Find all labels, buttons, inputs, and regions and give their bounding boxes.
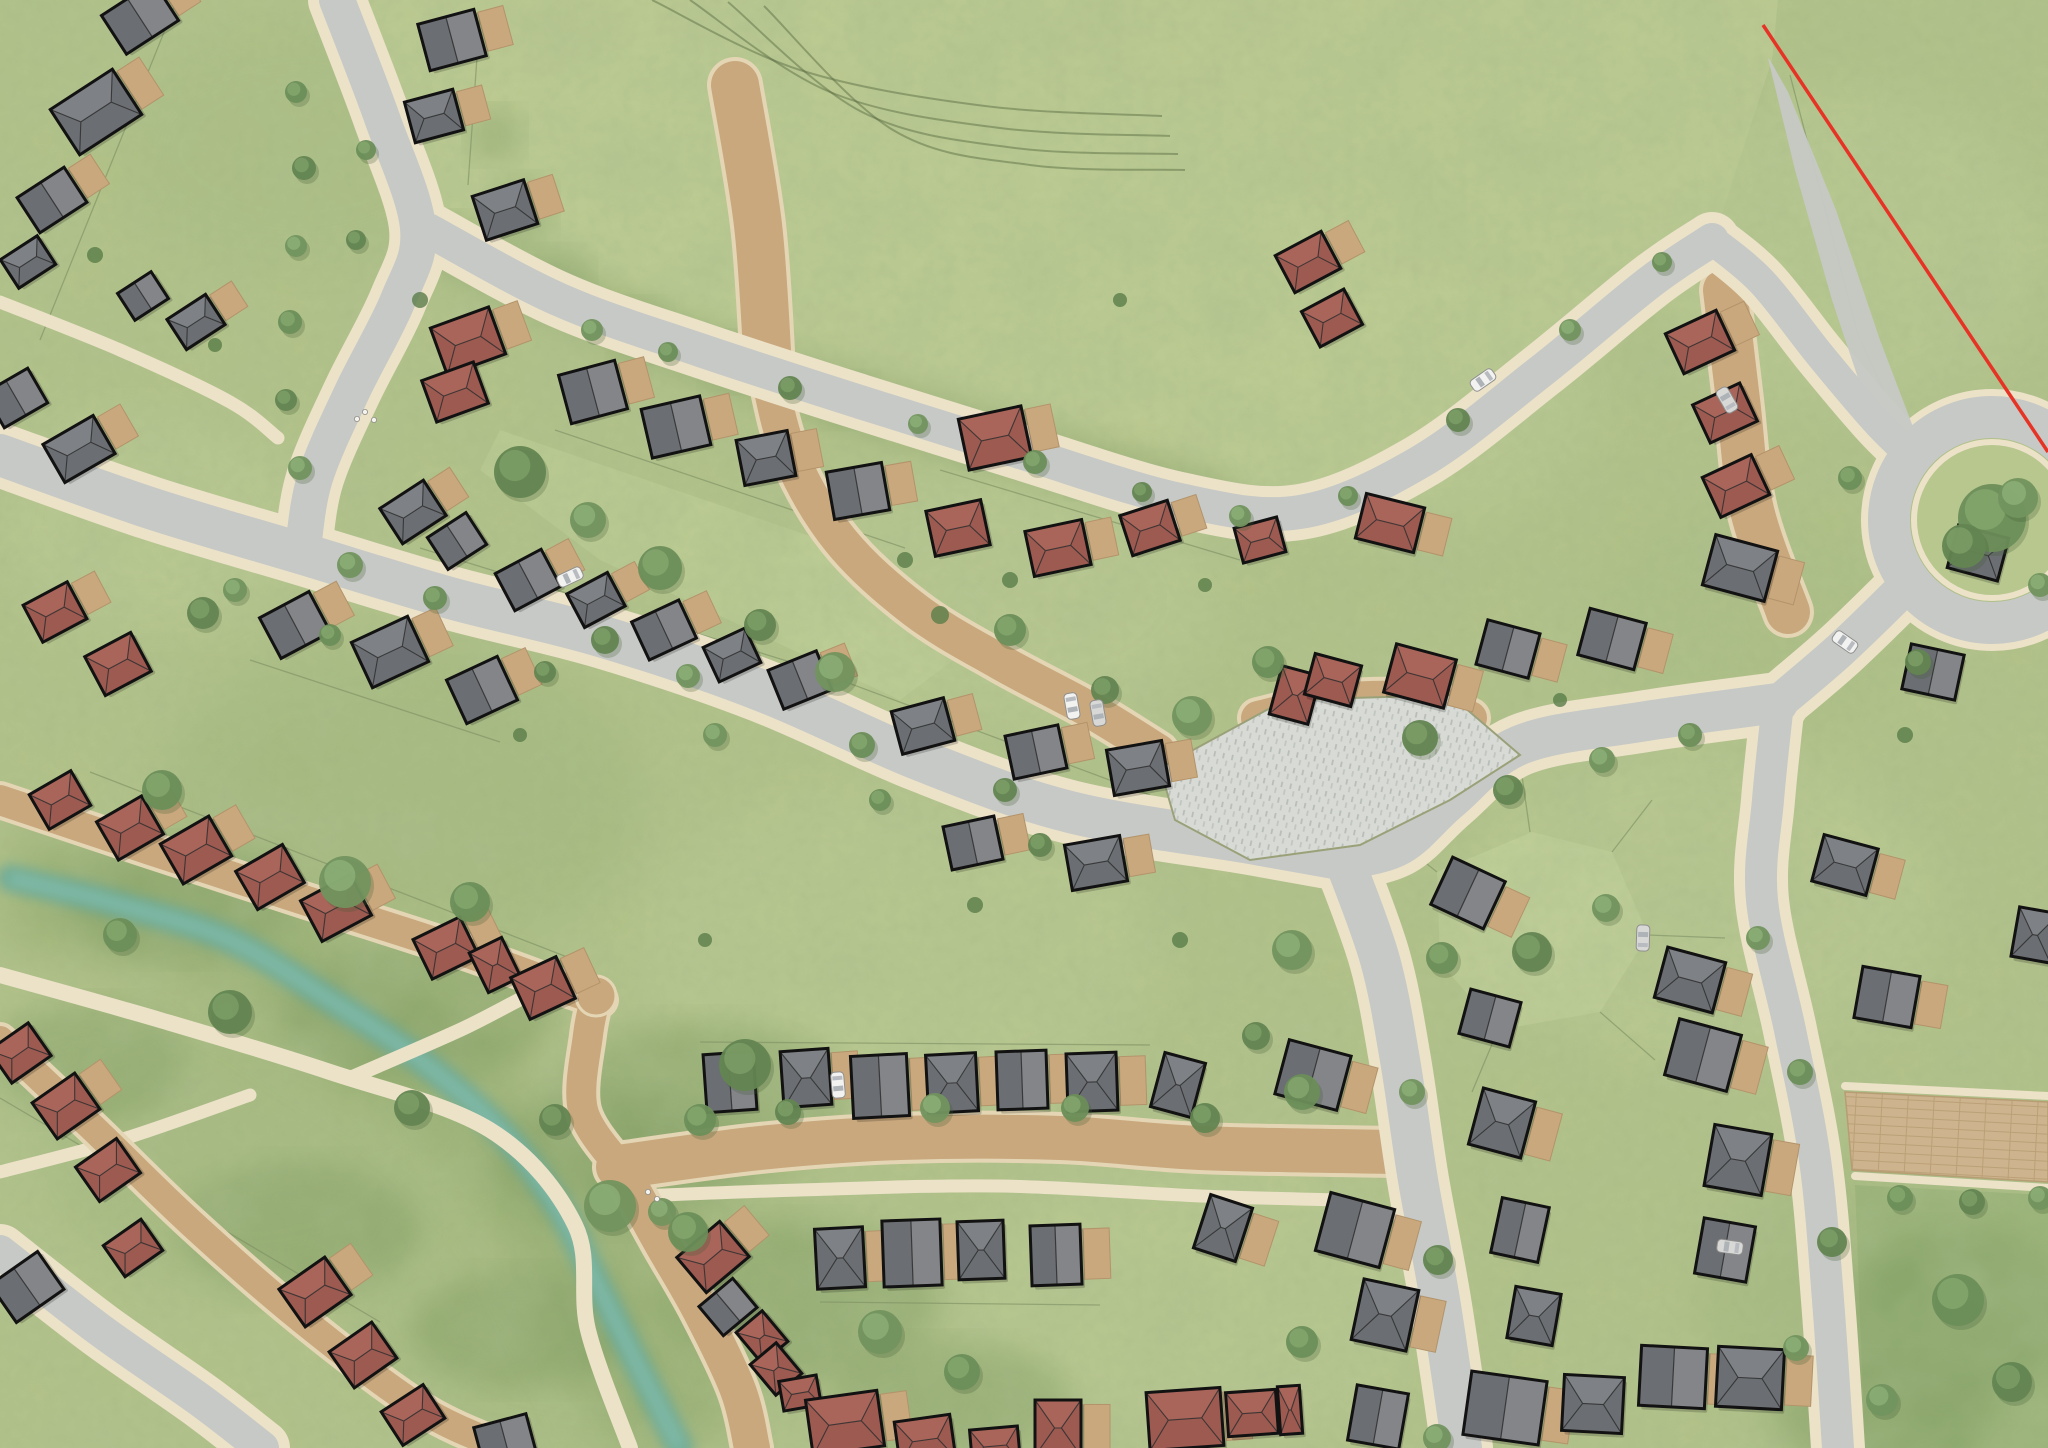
shrub bbox=[897, 552, 913, 568]
car-rear-window bbox=[1638, 943, 1648, 947]
tree-canopy-highlight bbox=[819, 655, 843, 679]
tree-canopy-highlight bbox=[997, 616, 1016, 635]
tree-canopy-highlight bbox=[425, 588, 439, 602]
tree-canopy-highlight bbox=[1448, 410, 1462, 424]
tree-canopy-highlight bbox=[574, 505, 596, 527]
tree-canopy-highlight bbox=[1289, 1328, 1308, 1347]
shrub bbox=[931, 606, 949, 624]
house-red-roof bbox=[970, 1426, 1024, 1448]
house-red-roof bbox=[1035, 1400, 1110, 1448]
tree-canopy-highlight bbox=[678, 666, 692, 680]
house-red-roof bbox=[1277, 1385, 1306, 1439]
tree-canopy-highlight bbox=[724, 1043, 755, 1074]
tree-canopy-highlight bbox=[1820, 1229, 1838, 1247]
tree-canopy-highlight bbox=[287, 83, 300, 96]
sheep bbox=[645, 1189, 650, 1194]
tree-canopy-highlight bbox=[1402, 1081, 1418, 1097]
tree-canopy-highlight bbox=[294, 158, 308, 172]
tree-canopy-highlight bbox=[1426, 1247, 1444, 1265]
house-gray-roof bbox=[1506, 1286, 1564, 1350]
tree-canopy-highlight bbox=[1890, 1187, 1906, 1203]
tree-canopy-highlight bbox=[1193, 1105, 1211, 1123]
shrub bbox=[1553, 693, 1567, 707]
tree-canopy-highlight bbox=[146, 773, 170, 797]
tree-canopy-highlight bbox=[1595, 896, 1612, 913]
tree-canopy-highlight bbox=[542, 1106, 561, 1125]
tree-canopy-highlight bbox=[348, 232, 360, 244]
tree-canopy-highlight bbox=[871, 791, 884, 804]
roof-facet bbox=[1021, 1050, 1048, 1109]
tree-canopy-highlight bbox=[1094, 678, 1111, 695]
roof-facet bbox=[911, 1219, 942, 1286]
tree-canopy-highlight bbox=[1592, 749, 1608, 765]
sheep bbox=[371, 417, 376, 422]
masterplan-canvas bbox=[0, 0, 2048, 1448]
shrub bbox=[513, 728, 527, 742]
tree-canopy-highlight bbox=[780, 378, 794, 392]
tree-canopy-highlight bbox=[287, 237, 300, 250]
tree-canopy-highlight bbox=[672, 1215, 696, 1239]
house-gray-roof bbox=[1561, 1374, 1627, 1437]
site-plan-svg bbox=[0, 0, 2048, 1448]
tree-canopy-highlight bbox=[660, 344, 672, 356]
shrub bbox=[967, 897, 983, 913]
shrub bbox=[1113, 293, 1127, 307]
tree-canopy-highlight bbox=[321, 626, 334, 639]
shrub bbox=[698, 933, 712, 947]
tree-canopy-highlight bbox=[1288, 1077, 1310, 1099]
tree-canopy-highlight bbox=[499, 450, 530, 481]
shrub bbox=[412, 292, 428, 308]
shrub bbox=[1897, 727, 1913, 743]
tree-canopy-highlight bbox=[1946, 527, 1972, 553]
tree-canopy-highlight bbox=[1340, 488, 1352, 500]
tree-canopy-highlight bbox=[106, 921, 126, 941]
tree-canopy-highlight bbox=[1996, 1365, 2020, 1389]
tree-canopy-highlight bbox=[277, 391, 290, 404]
house-red-roof bbox=[1226, 1389, 1282, 1441]
car bbox=[1636, 925, 1650, 951]
tree-canopy-highlight bbox=[290, 458, 304, 472]
parking-court bbox=[1845, 1092, 2048, 1182]
tree-canopy-highlight bbox=[705, 725, 719, 739]
tree-canopy-highlight bbox=[583, 321, 596, 334]
tree-canopy-highlight bbox=[910, 416, 922, 428]
tree-canopy-highlight bbox=[1276, 933, 1300, 957]
tree-canopy-highlight bbox=[1245, 1024, 1262, 1041]
shrub bbox=[1002, 572, 1018, 588]
tree-canopy-highlight bbox=[1064, 1096, 1081, 1113]
tree-canopy-highlight bbox=[1962, 1191, 1978, 1207]
tree-canopy-highlight bbox=[2030, 1188, 2044, 1202]
tree-canopy-highlight bbox=[1496, 777, 1514, 795]
tree-canopy-highlight bbox=[687, 1106, 706, 1125]
tree-canopy-highlight bbox=[589, 1184, 620, 1215]
tree-canopy-highlight bbox=[1840, 468, 1854, 482]
tree-canopy-highlight bbox=[923, 1095, 941, 1113]
driveway bbox=[1083, 1228, 1111, 1279]
tree-canopy-highlight bbox=[536, 663, 549, 676]
tree-canopy-highlight bbox=[1680, 725, 1694, 739]
car-body bbox=[830, 1071, 845, 1098]
tree-canopy-highlight bbox=[747, 611, 766, 630]
tree-canopy-highlight bbox=[1255, 648, 1274, 667]
car-windshield bbox=[833, 1086, 843, 1092]
tree-canopy-highlight bbox=[1869, 1386, 1888, 1405]
house-gray-roof bbox=[1347, 1385, 1412, 1448]
tree-canopy-highlight bbox=[358, 142, 370, 154]
car-body bbox=[1636, 925, 1650, 951]
tree-canopy-highlight bbox=[1937, 1278, 1968, 1309]
sheep bbox=[354, 416, 359, 421]
car bbox=[830, 1071, 845, 1098]
tree-canopy-highlight bbox=[398, 1093, 420, 1115]
tree-canopy-highlight bbox=[651, 1200, 668, 1217]
tree-canopy-highlight bbox=[1030, 835, 1044, 849]
tree-canopy-highlight bbox=[995, 780, 1009, 794]
tree-canopy-highlight bbox=[1748, 928, 1762, 942]
tree-canopy-highlight bbox=[340, 554, 356, 570]
tree-canopy-highlight bbox=[642, 549, 668, 575]
tree-canopy-highlight bbox=[1790, 1061, 1806, 1077]
tree-canopy-highlight bbox=[1516, 935, 1540, 959]
roof-facet bbox=[878, 1054, 909, 1117]
driveway bbox=[1084, 1404, 1110, 1448]
tree-canopy-highlight bbox=[1231, 507, 1244, 520]
shrub bbox=[87, 247, 103, 263]
tree-canopy-highlight bbox=[280, 312, 294, 326]
tree-canopy-highlight bbox=[1426, 1426, 1443, 1443]
sheep bbox=[654, 1196, 659, 1201]
car-windshield bbox=[1638, 932, 1648, 937]
tree-canopy-highlight bbox=[778, 1101, 794, 1117]
tree-canopy-highlight bbox=[1561, 321, 1574, 334]
roof-facet bbox=[1671, 1347, 1707, 1409]
tree-canopy-highlight bbox=[852, 734, 868, 750]
tree-canopy-highlight bbox=[212, 993, 238, 1019]
tree-canopy-highlight bbox=[454, 885, 478, 909]
tree-canopy-highlight bbox=[324, 860, 355, 891]
sheep bbox=[362, 409, 367, 414]
shrub bbox=[1198, 578, 1212, 592]
tree-canopy-highlight bbox=[1025, 452, 1039, 466]
roof-facet bbox=[1055, 1224, 1082, 1285]
tree-canopy-highlight bbox=[1429, 944, 1448, 963]
tree-canopy-highlight bbox=[948, 1357, 970, 1379]
tree-canopy-highlight bbox=[1654, 254, 1666, 266]
tree-canopy-highlight bbox=[190, 599, 209, 618]
tree-canopy-highlight bbox=[2030, 575, 2044, 589]
tree-canopy-highlight bbox=[1134, 484, 1146, 496]
tree-canopy-highlight bbox=[225, 580, 239, 594]
tree-canopy-highlight bbox=[1908, 651, 1924, 667]
tree-canopy-highlight bbox=[1176, 699, 1200, 723]
tree-canopy-highlight bbox=[594, 628, 611, 645]
tree-canopy-highlight bbox=[862, 1313, 888, 1339]
tree-canopy-highlight bbox=[1406, 723, 1428, 745]
shrub bbox=[1172, 932, 1188, 948]
driveway bbox=[1119, 1056, 1147, 1106]
tree-canopy-highlight bbox=[2002, 481, 2026, 505]
tree-canopy-highlight bbox=[1786, 1337, 1802, 1353]
house-gray-roof bbox=[957, 1220, 1008, 1284]
shrub bbox=[208, 338, 222, 352]
